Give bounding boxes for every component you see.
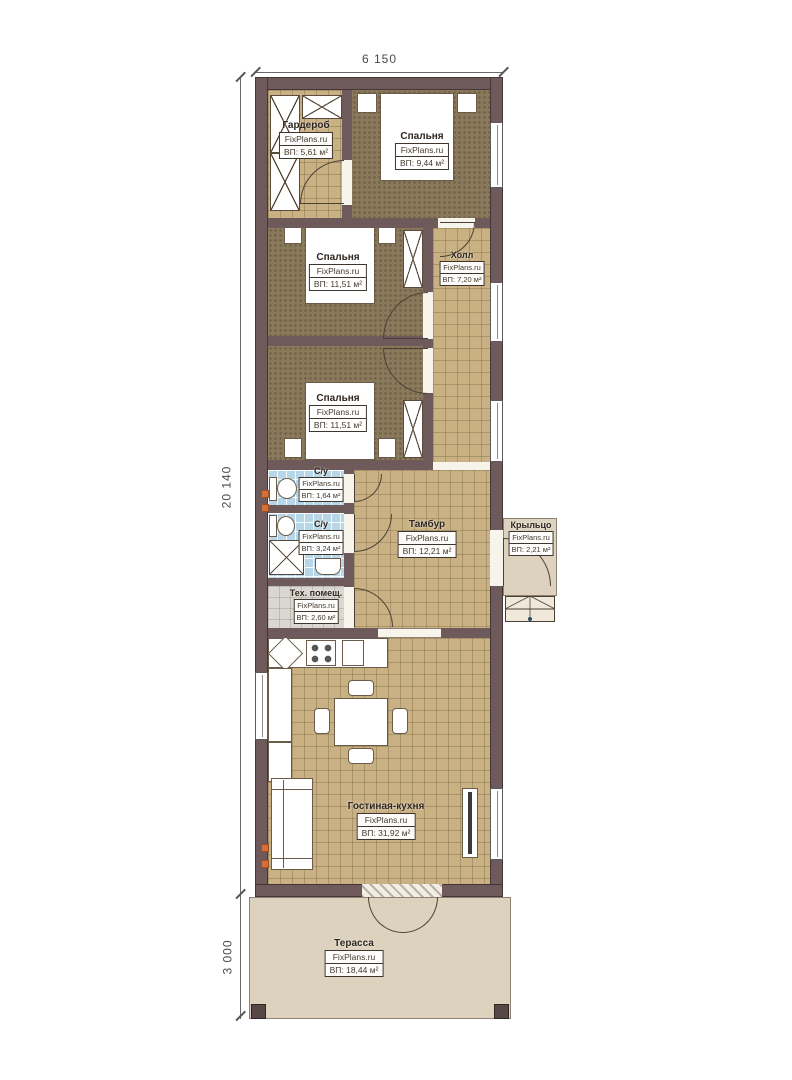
closet-bedroom3 (403, 400, 423, 458)
wall-wc1-wc2 (268, 505, 344, 513)
dimension-height-main: 20 140 (219, 466, 233, 509)
brand-watermark: FixPlans.ru (326, 951, 383, 964)
window-hall-upper (490, 282, 503, 342)
room-name: Тамбур (398, 519, 457, 530)
fridge (268, 742, 292, 782)
sofa-armrest-line (272, 789, 312, 790)
window-kitchen (255, 672, 268, 740)
room-area: ВП: 3,24 м² (300, 543, 343, 554)
exterior-wall-right (490, 77, 503, 897)
nightstand (357, 93, 377, 113)
toilet-bowl-wc2 (277, 516, 295, 536)
brand-watermark: FixPlans.ru (396, 144, 448, 157)
wall-vent (261, 504, 269, 512)
room-name: Крыльцо (509, 520, 554, 530)
dimension-line-top (255, 72, 503, 73)
dimension-line-left-main (240, 77, 241, 897)
toilet-tank-wc2 (269, 515, 277, 537)
brand-watermark: FixPlans.ru (358, 814, 415, 827)
porch-steps (505, 596, 555, 622)
room-label-wc2: С/у FixPlans.ru ВП: 3,24 м² (299, 519, 344, 556)
brand-watermark: FixPlans.ru (310, 406, 366, 419)
dimension-line-left-terrace (240, 897, 241, 1019)
window-living (490, 788, 503, 860)
wall-vent (261, 844, 269, 852)
room-area: ВП: 12,21 м² (399, 545, 456, 557)
brand-watermark: FixPlans.ru (510, 532, 553, 544)
dimension-height-terrace: 3 000 (221, 939, 235, 974)
chair (314, 708, 330, 734)
exterior-wall-top (255, 77, 503, 90)
room-label-wardrobe: Гардероб FixPlans.ru ВП: 5,61 м² (279, 120, 333, 160)
room-area: ВП: 31,92 м² (358, 827, 415, 839)
toilet-bowl-wc1 (277, 478, 297, 499)
wall-tambour-kitchen-right (441, 628, 490, 638)
room-name: С/у (299, 466, 344, 476)
room-area: ВП: 5,61 м² (280, 146, 332, 158)
room-area: ВП: 11,51 м² (310, 278, 366, 290)
room-area: ВП: 18,44 м² (326, 964, 383, 976)
room-label-hall: Холл FixPlans.ru ВП: 7,20 м² (440, 250, 485, 287)
chair (348, 748, 374, 764)
room-name: Тех. помещ. (290, 588, 343, 598)
room-label-tambour: Тамбур FixPlans.ru ВП: 12,21 м² (398, 519, 457, 559)
door-opening-entrance (490, 530, 503, 586)
tv-screen (468, 792, 472, 854)
terrace-post-right (494, 1004, 509, 1019)
brand-watermark: FixPlans.ru (300, 478, 343, 490)
room-name: Холл (440, 250, 485, 260)
wardrobe-cabinet-top (302, 95, 342, 119)
window-hall-lower (490, 400, 503, 462)
brand-watermark: FixPlans.ru (441, 262, 484, 274)
wall-vent (261, 860, 269, 868)
kitchen-counter-left (268, 668, 292, 742)
door-opening-tech (344, 587, 354, 628)
nightstand (378, 438, 396, 458)
wardrobe-cabinet-left2 (270, 153, 300, 211)
window-bedroom1 (490, 122, 503, 188)
sink-wc2 (315, 558, 341, 575)
room-name: Терасса (325, 938, 384, 949)
room-name: Спальня (395, 131, 449, 142)
room-label-bedroom1: Спальня FixPlans.ru ВП: 9,44 м² (395, 131, 449, 171)
kitchen-appliance (342, 640, 364, 666)
room-label-terrace: Терасса FixPlans.ru ВП: 18,44 м² (325, 938, 384, 978)
stove (306, 640, 336, 666)
nightstand (457, 93, 477, 113)
closet-bedroom2 (403, 230, 423, 288)
sofa (271, 778, 313, 870)
exterior-wall-left (255, 77, 268, 897)
brand-watermark: FixPlans.ru (295, 600, 338, 612)
room-area: ВП: 9,44 м² (396, 157, 448, 169)
chair (348, 680, 374, 696)
dining-table (334, 698, 388, 746)
room-label-living: Гостиная-кухня FixPlans.ru ВП: 31,92 м² (348, 801, 425, 841)
room-label-tech: Тех. помещ. FixPlans.ru ВП: 2,60 м² (290, 588, 343, 625)
threshold-terrace-door (362, 884, 442, 897)
chair (392, 708, 408, 734)
room-label-porch: Крыльцо FixPlans.ru ВП: 2,21 м² (509, 520, 554, 557)
room-label-bedroom3: Спальня FixPlans.ru ВП: 11,51 м² (309, 393, 367, 433)
room-name: Гостиная-кухня (348, 801, 425, 812)
sofa-back-line (283, 780, 284, 868)
toilet-tank-wc1 (269, 477, 277, 501)
wall-wc2-tech (268, 578, 344, 586)
wall-bedroom3-bath (268, 460, 423, 470)
door-opening-wc2 (344, 514, 354, 553)
sofa-armrest-line (272, 858, 312, 859)
brand-watermark: FixPlans.ru (310, 265, 366, 278)
brand-watermark: FixPlans.ru (399, 532, 456, 545)
room-label-bedroom2: Спальня FixPlans.ru ВП: 11,51 м² (309, 252, 367, 292)
room-name: С/у (299, 519, 344, 529)
brand-watermark: FixPlans.ru (300, 531, 343, 543)
room-label-wc1: С/у FixPlans.ru ВП: 1,64 м² (299, 466, 344, 503)
wall-tambour-kitchen-left (268, 628, 378, 638)
room-name: Спальня (309, 393, 367, 404)
room-area: ВП: 2,21 м² (510, 544, 553, 555)
room-area: ВП: 2,60 м² (295, 612, 338, 623)
room-name: Спальня (309, 252, 367, 263)
wall-vent (261, 490, 269, 498)
terrace-post-left (251, 1004, 266, 1019)
brand-watermark: FixPlans.ru (280, 133, 332, 146)
threshold-tambour-kitchen (378, 628, 441, 638)
door-opening-wc1 (344, 474, 354, 503)
dimension-width-total: 6 150 (362, 52, 397, 66)
threshold-hall-tambour (433, 462, 490, 470)
room-area: ВП: 11,51 м² (310, 419, 366, 431)
nightstand (284, 438, 302, 458)
room-area: ВП: 7,20 м² (441, 274, 484, 285)
room-name: Гардероб (279, 120, 333, 131)
floor-plan-canvas: 6 150 20 140 3 000 (0, 0, 792, 1080)
room-area: ВП: 1,64 м² (300, 490, 343, 501)
